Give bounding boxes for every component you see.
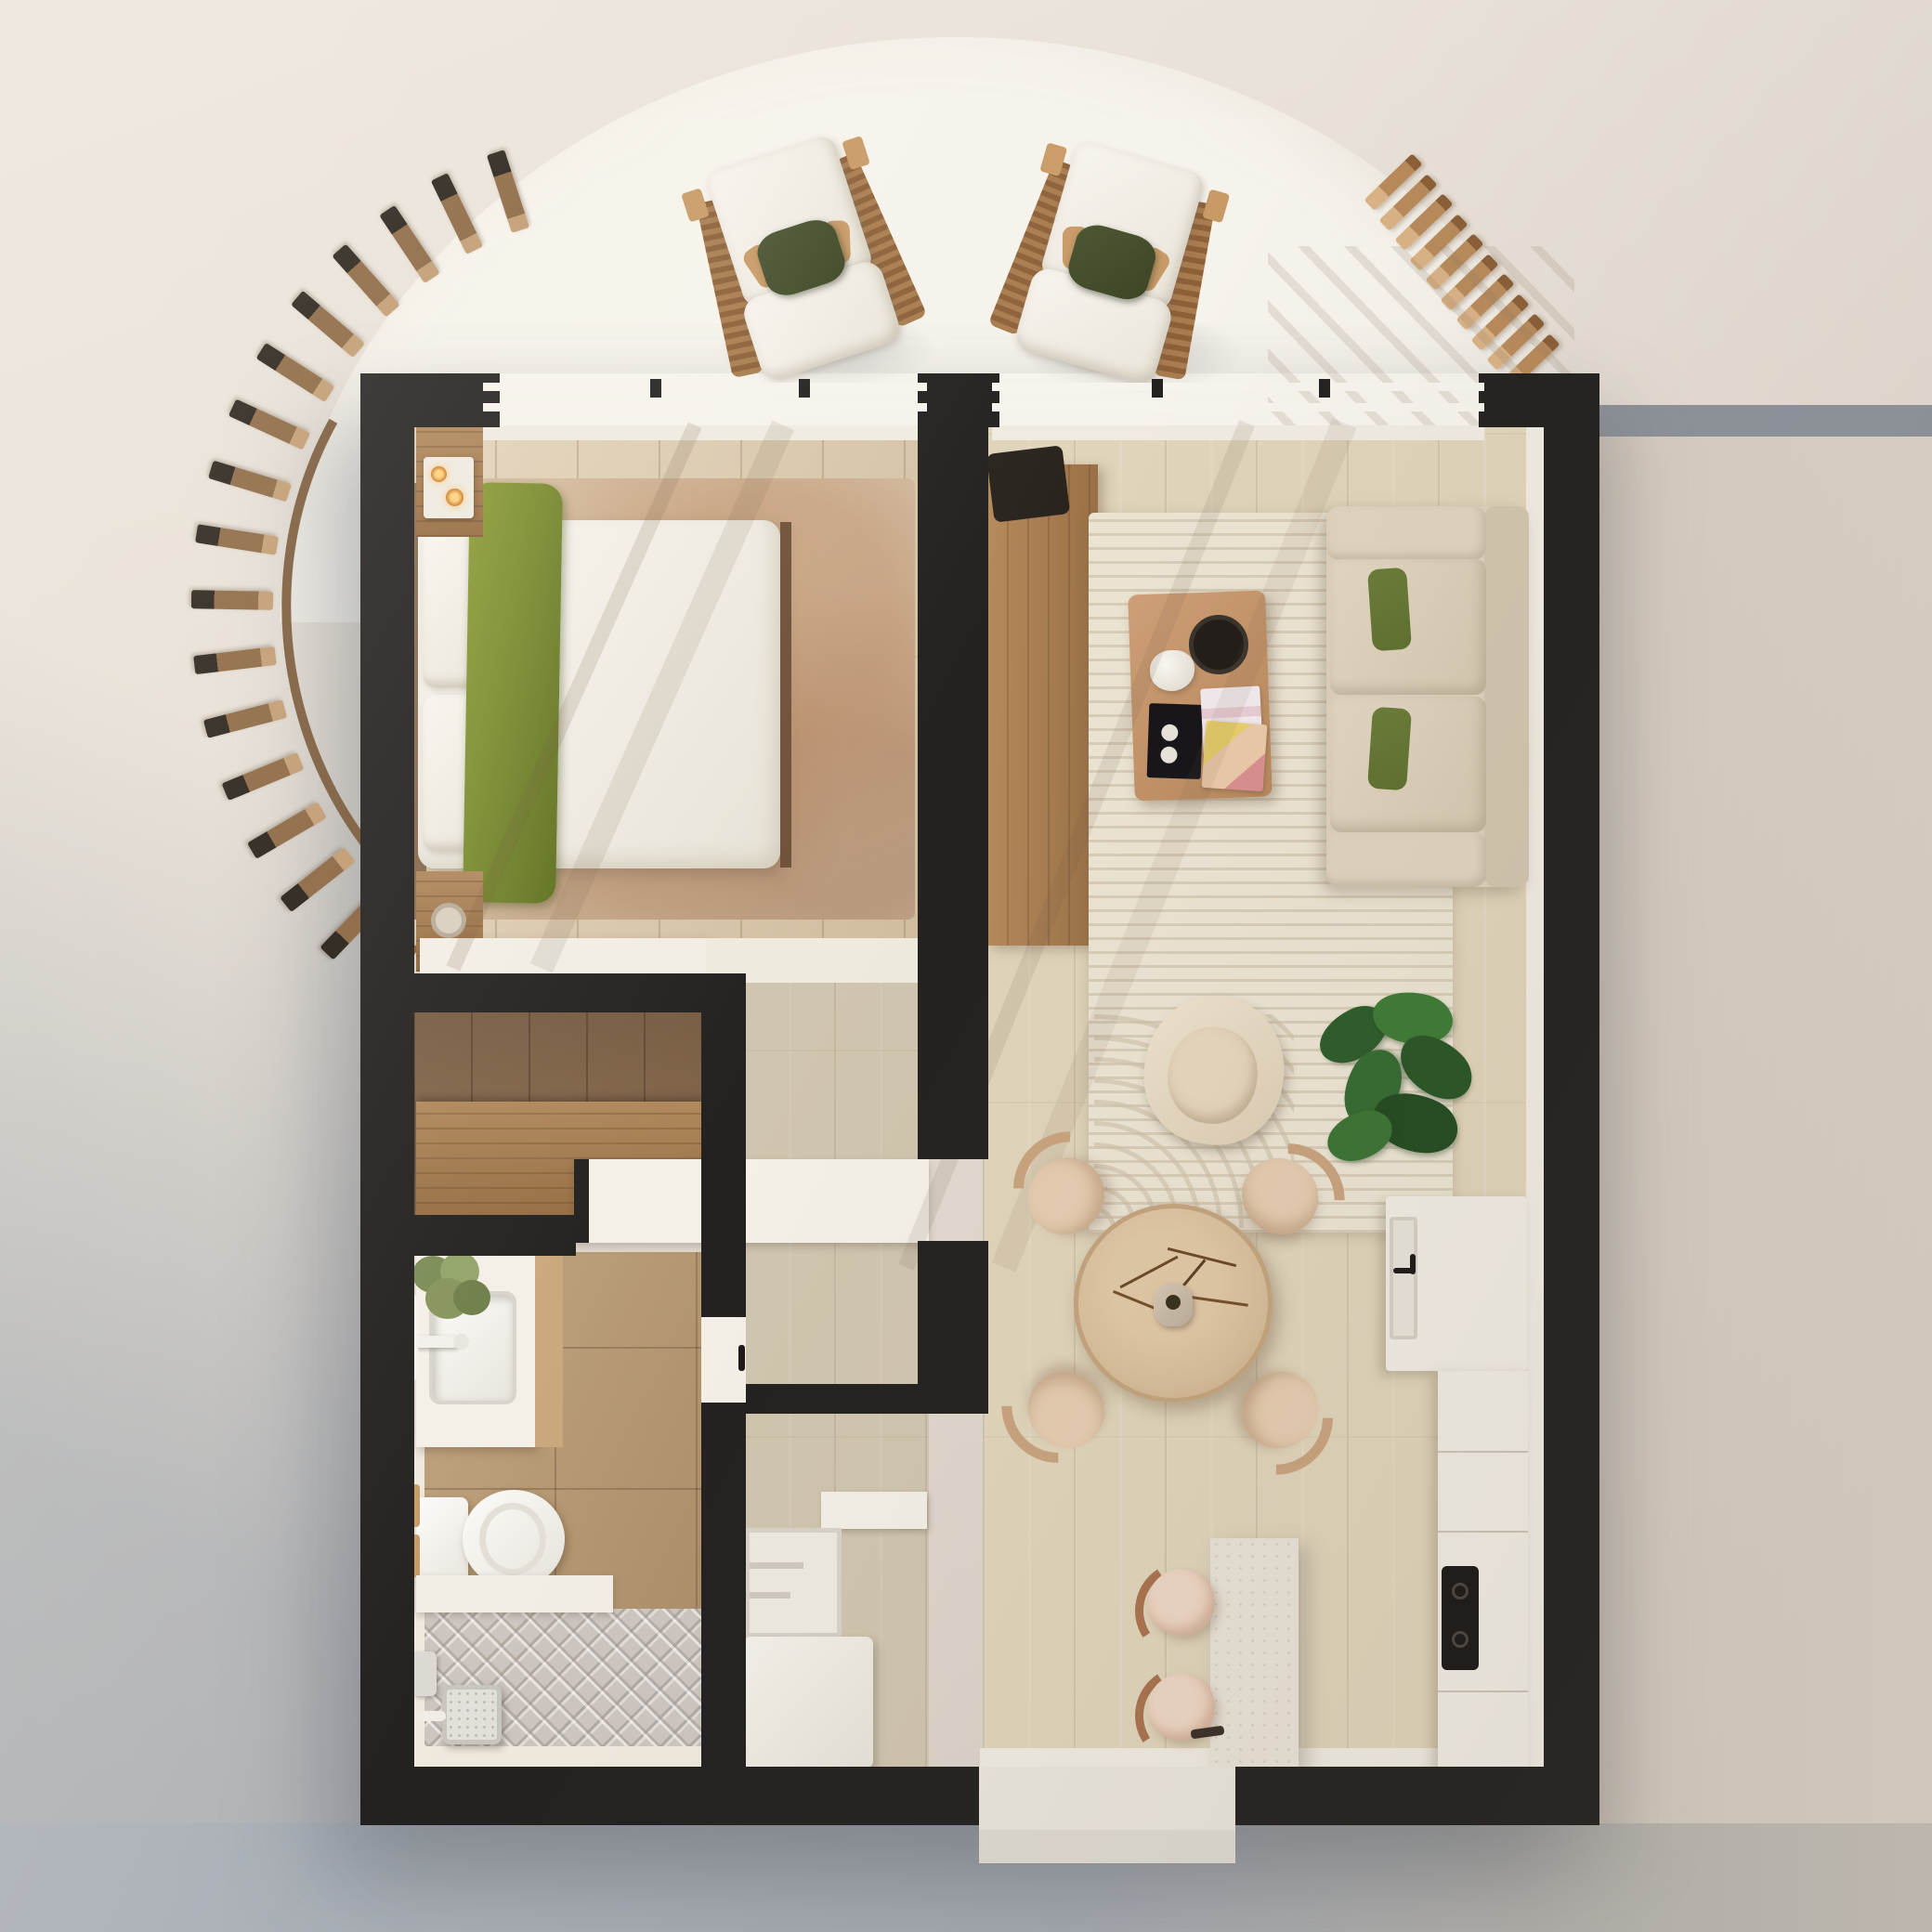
magazine-cover-dots (1161, 724, 1179, 741)
shelf-line (750, 1592, 790, 1599)
pergola-slat (191, 590, 273, 610)
table-vase (1154, 1284, 1193, 1326)
wall-closet-top (413, 973, 711, 1012)
bathroom-door-handle (738, 1345, 745, 1371)
toilet-seat-ring (479, 1503, 546, 1575)
wall-bottom-b (1234, 1767, 1599, 1825)
window-mullion (1152, 379, 1163, 398)
wall-closet-bottom (360, 1215, 576, 1256)
bar-stool (1142, 1563, 1221, 1641)
utility-washer (743, 1637, 873, 1769)
wall-right (1544, 373, 1599, 1825)
window-mullion (650, 379, 661, 398)
candle-tray (424, 457, 474, 518)
shower-arm (416, 1711, 446, 1721)
living-window-frame (992, 403, 1484, 411)
living-window-frame (992, 383, 1484, 391)
shelf-line (750, 1562, 803, 1569)
door-track (574, 1159, 589, 1243)
closet-sliding-door (574, 1159, 929, 1243)
sofa-armrest (1326, 832, 1486, 887)
candle-flame (431, 466, 447, 482)
wall-top-a (360, 373, 500, 427)
stool-seat (1148, 1569, 1215, 1636)
tv-console (986, 464, 1098, 946)
wall-bath-right-lower (701, 1401, 746, 1770)
cooktop (1442, 1566, 1479, 1670)
shower-curb (416, 1575, 613, 1612)
wall-bottom-a (360, 1767, 981, 1825)
entry-step (979, 1830, 1235, 1863)
burner (1452, 1583, 1469, 1599)
vanity-plant (405, 1250, 502, 1347)
sofa-backrest (1484, 506, 1529, 887)
wall-top-b (918, 373, 999, 427)
toilet-bowl (463, 1490, 565, 1588)
magazine-face (1202, 721, 1268, 791)
drawer-seam (1438, 1690, 1528, 1692)
window-mullion (1319, 379, 1330, 398)
wall-divider (918, 425, 988, 1159)
bedroom-window-frame (483, 403, 927, 411)
bedroom-window-frame (483, 383, 927, 391)
exterior-right (1590, 437, 1932, 1823)
utility-pocket-door (821, 1492, 927, 1529)
wall-closet-right (701, 973, 746, 1254)
bed-foot-frame (780, 522, 791, 868)
shower-valve (412, 1651, 437, 1696)
wall-bath-right-upper (701, 1254, 746, 1319)
toilet-tank (416, 1497, 468, 1585)
window-mullion (799, 379, 810, 398)
bedroom-window-sill (483, 425, 927, 440)
wall-left (360, 373, 414, 1825)
utility-shelving (745, 1528, 842, 1638)
round-tray (1189, 615, 1248, 674)
kitchen-sink (1390, 1217, 1417, 1339)
green-throw-blanket (463, 482, 563, 904)
vanity-wood-edge (535, 1254, 563, 1447)
vase-opening (1166, 1295, 1181, 1310)
drawer-seam (1438, 1451, 1528, 1453)
monstera-plant (1308, 992, 1480, 1192)
plant-foliage (453, 1280, 490, 1315)
console-art-object (986, 445, 1070, 522)
magazine-black (1147, 703, 1204, 779)
burner (1452, 1631, 1469, 1648)
rain-shower-head (442, 1685, 502, 1744)
exterior-bottom-shadow (0, 1823, 1932, 1932)
entry-threshold (979, 1767, 1235, 1830)
floor-plan-scene (0, 0, 1932, 1932)
green-lumbar-pillow (1367, 568, 1412, 652)
nightstand-tray (431, 903, 466, 938)
candle-flame (446, 489, 463, 506)
drawer-seam (1438, 1531, 1528, 1533)
kitchen-faucet (1410, 1254, 1416, 1274)
living-window-sill (992, 425, 1484, 440)
exterior-wall-band (1590, 405, 1932, 437)
magazine-cover-dots (1160, 746, 1178, 764)
sofa-armrest (1326, 506, 1486, 560)
green-lumbar-pillow (1367, 707, 1412, 791)
